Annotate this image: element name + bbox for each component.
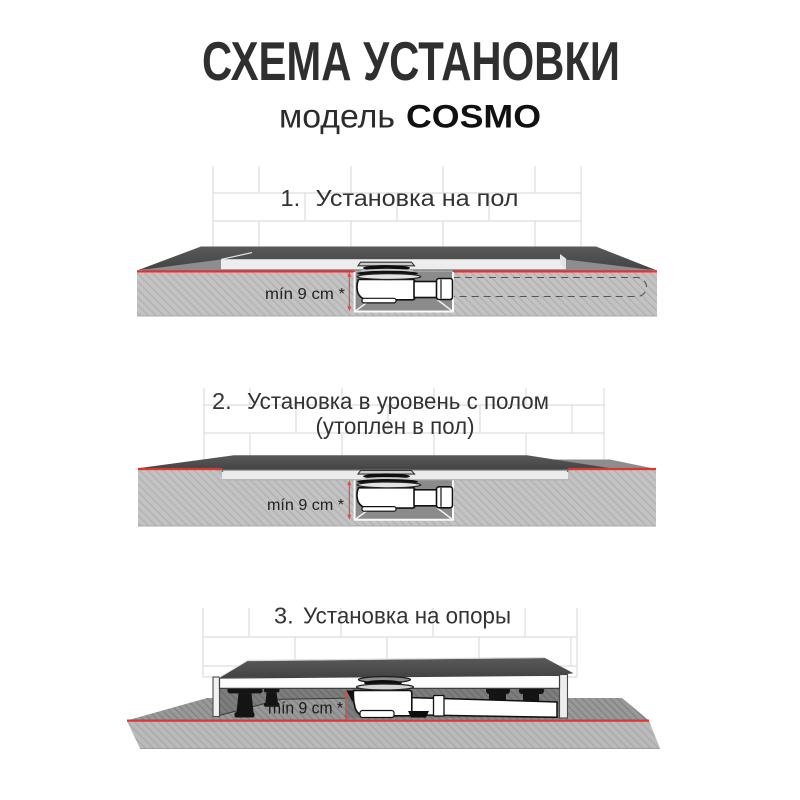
svg-text:mín 9 cm *: mín 9 cm * xyxy=(267,497,344,514)
svg-text:Установка в уровень с полом: Установка в уровень с полом xyxy=(247,388,549,414)
svg-text:(утоплен в пол): (утоплен в пол) xyxy=(316,413,475,439)
svg-text:mín 9 cm *: mín 9 cm * xyxy=(265,286,345,303)
svg-text:mín 9 cm *: mín 9 cm * xyxy=(268,699,343,718)
svg-text:Установка на опоры: Установка на опоры xyxy=(303,603,511,629)
svg-text:3.: 3. xyxy=(274,603,294,629)
svg-text:модель: модель xyxy=(279,98,395,135)
svg-text:1.: 1. xyxy=(281,185,301,211)
svg-text:COSMO: COSMO xyxy=(406,99,541,135)
svg-text:2.: 2. xyxy=(212,388,232,414)
svg-text:Установка на пол: Установка на пол xyxy=(316,185,519,211)
svg-text:СХЕМА УСТАНОВКИ: СХЕМА УСТАНОВКИ xyxy=(202,30,620,92)
